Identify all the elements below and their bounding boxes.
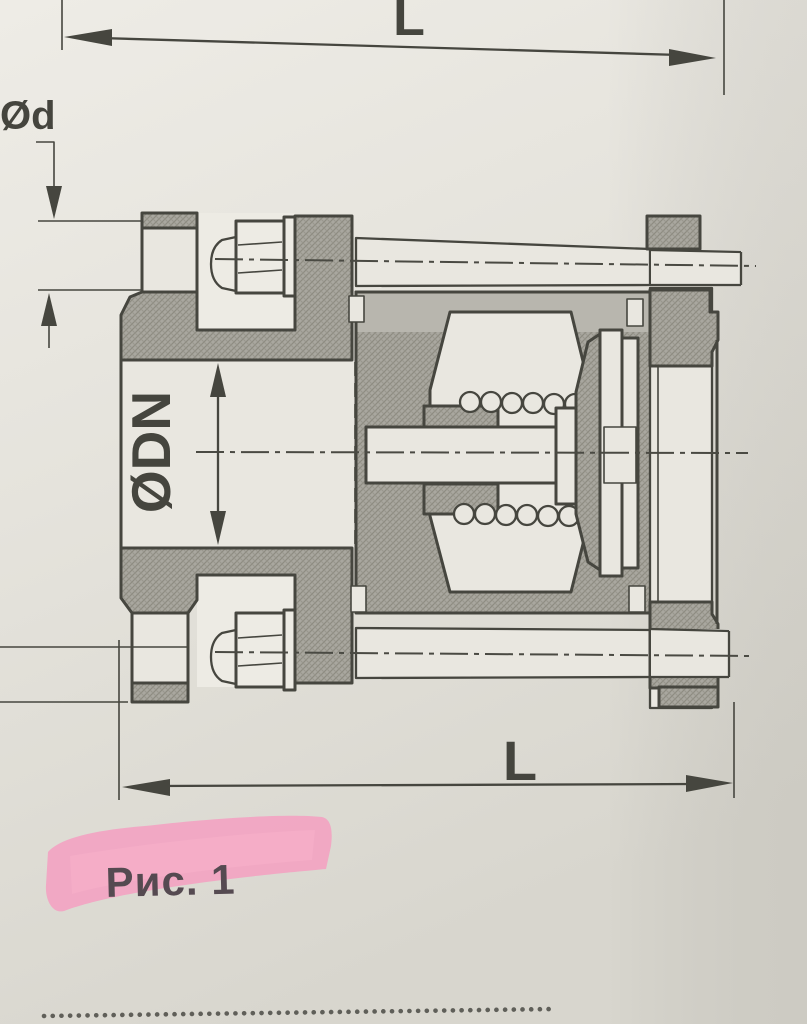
photographed-document-page: L Ød bbox=[0, 0, 807, 1024]
upper-right-nut bbox=[647, 216, 700, 249]
valve-figure-drawing: L Ød bbox=[0, 0, 807, 1024]
stem bbox=[366, 427, 562, 483]
lower-right-nut bbox=[659, 687, 718, 707]
main-axis-centerline bbox=[196, 452, 748, 453]
bottom-length-label: L bbox=[503, 729, 537, 792]
nominal-diameter-label: ØDN bbox=[120, 391, 182, 513]
top-length-label: L bbox=[393, 0, 425, 47]
figure-caption-text: Рис. 1 bbox=[105, 856, 236, 906]
bolt-diameter-label: Ød bbox=[0, 94, 56, 138]
